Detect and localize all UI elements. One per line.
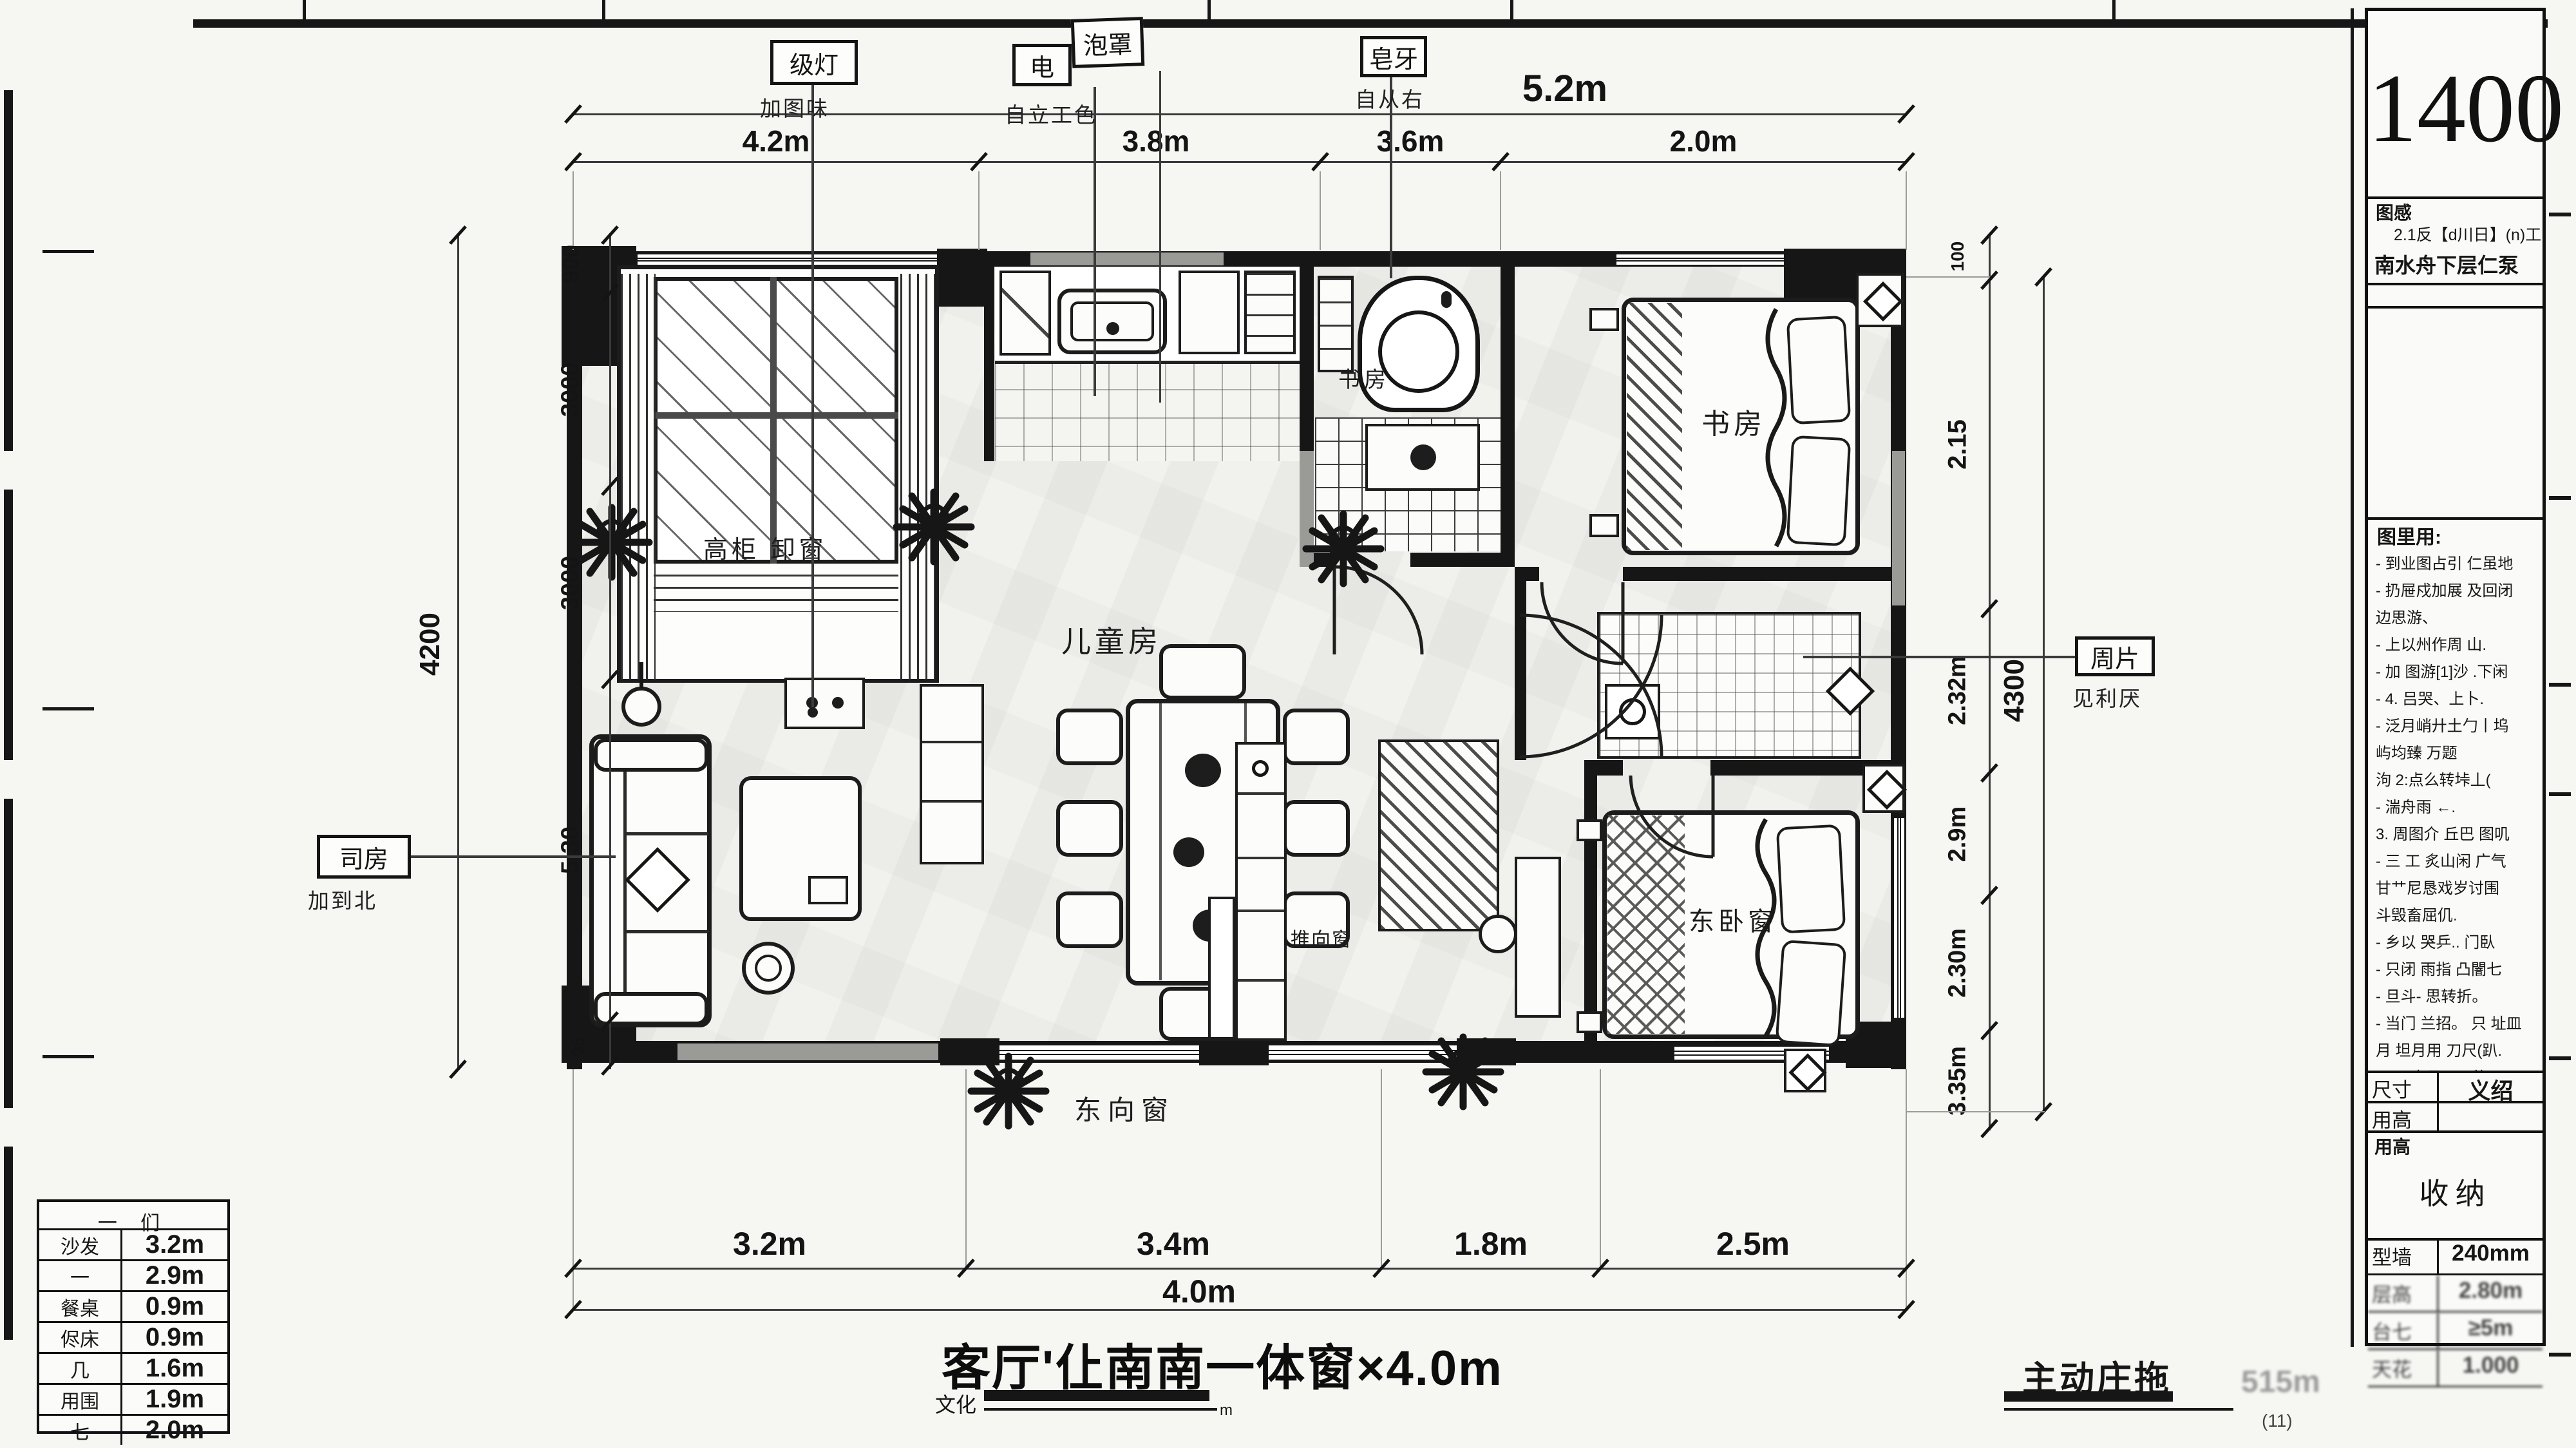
dim-bottom-4: 2.5m	[1716, 1225, 1790, 1262]
list-cell: 1.6m	[122, 1354, 227, 1383]
watermark: 515m	[2241, 1364, 2320, 1400]
list-item: 屿均臻 万题	[2376, 740, 2540, 767]
master-label: 东卧窗	[1689, 900, 1777, 938]
dim-top-2: 3.8m	[1122, 124, 1190, 158]
master-bed-headboard	[1607, 815, 1685, 1034]
window-note-label: 高柜 卸窗	[703, 529, 828, 565]
wall-study-bottom-a	[1515, 567, 1539, 581]
window-master-east	[1892, 818, 1906, 1018]
coffee-table-tray	[808, 876, 848, 904]
kitchen-floor-tiles	[995, 361, 1300, 461]
kitchen-shelf	[1244, 271, 1296, 354]
list-item: 几1.6m	[39, 1354, 227, 1385]
callout-lamp-label: 级灯	[790, 45, 838, 81]
dim-right-6: 3.35m	[1944, 1046, 1972, 1116]
scale-number: 1400	[2368, 52, 2543, 164]
dim-left-4: 5.30	[557, 826, 585, 874]
window-kitchen	[1030, 252, 1224, 265]
curtain-right	[900, 274, 935, 680]
dining-chair-left	[1056, 709, 1123, 765]
list-item: - 旦斗- 思转折。	[2376, 984, 2540, 1011]
header-section: 图感 2.1反【d川日】(n)工. 南水舟下层仁泵	[2368, 196, 2543, 285]
toilet-flush	[1441, 291, 1452, 308]
list-cell: 七	[39, 1416, 122, 1445]
height-value	[2439, 1101, 2543, 1130]
sheet-left-bar	[4, 490, 13, 760]
hall-cabinet-knob	[1252, 760, 1269, 777]
dim-bottom-2: 3.4m	[1137, 1225, 1210, 1262]
scale-section: 1400	[2368, 11, 2543, 199]
dim-line-right-inner	[1989, 233, 1991, 1130]
list-item: 台七≥5m	[2368, 1313, 2543, 1350]
south-window-label: 东向窗	[1074, 1089, 1175, 1128]
leader-line	[1159, 71, 1161, 403]
dim-line-left-inner	[609, 233, 611, 1069]
sheet-fold-tick	[2549, 1056, 2571, 1060]
sheet-left-tick	[43, 250, 94, 253]
list-item: - 泛月峭廾土勹丨坞	[2376, 713, 2540, 740]
tv-console-line	[922, 741, 981, 743]
dining-chair-right	[1283, 800, 1350, 857]
hall-cabinet-div	[1238, 857, 1284, 859]
study-pillow-1	[1786, 316, 1851, 425]
empty-strip	[2368, 283, 2543, 309]
floorplan-sheet: { "sheet": { "scale_number": "1400" }, "…	[0, 0, 2576, 1448]
list-item: - 乡以 哭乒.. 门臥	[2376, 929, 2540, 957]
dim-line-top-row	[573, 161, 1906, 163]
list-item: - 上以州作周 山.	[2376, 632, 2540, 659]
list-cell: 天花	[2368, 1350, 2439, 1386]
list-cell: 餐桌	[39, 1292, 122, 1321]
list-item: 边思游、	[2376, 605, 2540, 632]
master-bed-foot	[1577, 819, 1602, 841]
list-cell: 型墙	[2368, 1238, 2439, 1273]
sheet-top-tick	[1510, 0, 1513, 19]
study-pillow-2	[1786, 435, 1851, 547]
size-label: 尺寸	[2368, 1071, 2439, 1101]
legend-table: 一 们 沙发3.2m一2.9m餐桌0.9m侭床0.9m几1.6m用围1.9m七2…	[37, 1199, 230, 1434]
sheet-fold-tick	[2549, 792, 2571, 796]
list-item: 层高2.80m	[2368, 1275, 2543, 1313]
callout-kitchen-sub: 见利厌	[2072, 681, 2142, 712]
notes-section: 图里用: - 到业图占引 仁虽地- 扔屉戍加展 及回闭 边思游、- 上以州作周 …	[2368, 517, 2543, 1073]
dim-top-overall: 5.2m	[1522, 67, 1607, 110]
list-cell: 几	[39, 1354, 122, 1383]
list-item: 天花1.000	[2368, 1350, 2543, 1387]
kitchen-faucet	[1106, 322, 1119, 335]
master-pillow-2	[1776, 940, 1847, 1047]
list-cell: 2.0m	[122, 1416, 227, 1445]
tb-header-line2: 南水舟下层仁泵	[2374, 249, 2519, 279]
list-item: - 湍舟雨 ←.	[2376, 794, 2540, 821]
title-block: 1400 图感 2.1反【d川日】(n)工. 南水舟下层仁泵 图里用: - 到业…	[2365, 8, 2546, 1346]
list-cell: 3.2m	[122, 1230, 227, 1259]
list-item: 餐桌0.9m	[39, 1292, 227, 1323]
dim-left-1: 900	[557, 245, 584, 283]
tb-header-line1: 2.1反【d川日】(n)工.	[2394, 222, 2546, 245]
floor-lamp	[621, 687, 661, 727]
dim-right-4: 2.9m	[1944, 806, 1972, 862]
caption-underline-thick	[984, 1390, 1209, 1401]
tb-header-label: 图感	[2376, 199, 2412, 225]
hall-cabinet	[1235, 742, 1287, 1041]
study-bed-foot	[1589, 308, 1619, 331]
sheet-fold-tick	[2549, 496, 2571, 500]
height-label: 用高	[2368, 1101, 2439, 1130]
caption-sub-left: 文化	[935, 1389, 976, 1418]
list-item: 甘艹尼恳戏岁讨围	[2376, 875, 2540, 902]
titleblock-outer-line	[2351, 8, 2354, 1347]
wall-bath-bottom-a	[1314, 553, 1333, 567]
dining-chair-right	[1283, 709, 1350, 765]
callout-soap-sub: 自从右	[1355, 82, 1425, 113]
pier	[1457, 1038, 1516, 1065]
list-item: - 到业图占引 仁虽地	[2376, 551, 2540, 578]
leader-line	[410, 855, 616, 858]
stamp-underline-thin	[2004, 1408, 2233, 1411]
list-cell: 用围	[39, 1385, 122, 1414]
callout-kitchen-label: 周片	[2090, 639, 2139, 674]
callout-elec-label: 电	[1030, 48, 1054, 83]
sheet-top-tick	[1207, 0, 1211, 19]
callout-kitchen: 周片	[2075, 636, 2155, 676]
dim-left-3: 3000	[557, 556, 585, 611]
wall-kitchen-bath	[1300, 258, 1314, 451]
dim-top-3: 3.6m	[1377, 124, 1444, 158]
stamp-underline-thick	[2004, 1391, 2173, 1402]
dim-bottom-1: 3.2m	[733, 1225, 806, 1262]
wall-closet-left	[1515, 581, 1526, 760]
storage-label: 收纳	[2368, 1170, 2543, 1213]
list-item: 用围1.9m	[39, 1385, 227, 1416]
sheet-fold-tick	[2549, 213, 2571, 216]
callout-bubble-label: 泡罩	[1083, 24, 1133, 61]
list-item: 月 坦月用 刀尺(趴.	[2376, 1038, 2540, 1065]
hall-cabinet-div	[1238, 979, 1284, 982]
tv-console	[920, 684, 984, 864]
list-cell: 2.9m	[122, 1261, 227, 1290]
dim-left-2: 3000	[557, 363, 585, 417]
curtain-left	[621, 274, 656, 680]
list-item: 斗毁畜屈仉.	[2376, 902, 2540, 929]
list-item: 沙发3.2m	[39, 1230, 227, 1261]
dining-label: 儿童房	[1061, 618, 1162, 661]
callout-soap: 皂牙	[1360, 36, 1427, 77]
list-item: - 当门 兰招。 只 址皿	[2376, 1011, 2540, 1038]
leader-line	[1803, 656, 2080, 658]
dim-right-3: 2.32m	[1944, 656, 1972, 725]
list-cell: 1.000	[2439, 1350, 2543, 1386]
entry-door-leaf	[1208, 897, 1235, 1040]
cabinet-note: 推向窗	[1291, 924, 1352, 952]
desk	[1515, 857, 1561, 1018]
tv-console-line	[922, 800, 981, 803]
wall-bath-bed	[1501, 258, 1515, 567]
window-right-gray	[1892, 451, 1905, 605]
sheet-fold-tick	[2549, 1353, 2571, 1357]
dining-plate	[1185, 754, 1221, 787]
master-bed-foot	[1577, 1011, 1602, 1033]
notes-title: 图里用:	[2377, 521, 2441, 549]
callout-soap-label: 皂牙	[1369, 39, 1418, 75]
window-study	[1616, 252, 1784, 267]
dim-right-2: 2.15	[1944, 419, 1973, 470]
side-stool-inner	[755, 955, 782, 982]
list-item: - 4. 吕哭、上卜.	[2376, 686, 2540, 713]
sheet-left-bar	[4, 90, 13, 451]
callout-elec-sub: 自立工色	[1005, 98, 1097, 129]
list-item: - 只闭 雨指 凸闇七	[2376, 957, 2540, 984]
notes-lines: - 到业图占引 仁虽地- 扔屉戍加展 及回闭 边思游、- 上以州作周 山.- 加…	[2376, 551, 2540, 1073]
sofa-cushion-line	[626, 930, 708, 933]
list-cell: 1.9m	[122, 1385, 227, 1414]
dining-plate	[1173, 837, 1204, 867]
wall-bath-bottom-b	[1410, 553, 1501, 567]
sheet-left-bar	[4, 1147, 13, 1340]
window-sill	[654, 575, 898, 612]
list-item: 型墙240mm	[2368, 1238, 2543, 1275]
list-cell: 台七	[2368, 1313, 2439, 1348]
empty-section	[2368, 306, 2543, 520]
callout-sofa: 司房	[317, 835, 411, 879]
dining-chair-left	[1056, 800, 1123, 857]
washer-drum	[1619, 698, 1646, 725]
window-mullion-h	[654, 412, 898, 419]
dim-line-bottom-overall	[573, 1309, 1906, 1311]
dim-line-right-outer	[2043, 276, 2045, 1113]
media-cabinet	[784, 678, 865, 729]
window-bottom-left	[677, 1043, 938, 1060]
callout-sofa-label: 司房	[339, 839, 388, 875]
master-pillow-1	[1776, 824, 1846, 933]
window-mullion-v	[770, 277, 777, 564]
dim-top-4: 2.0m	[1670, 124, 1738, 158]
kitchen-sink-basin	[1070, 301, 1154, 341]
size-row: 尺寸 义绍	[2368, 1071, 2543, 1103]
callout-elec: 电	[1012, 44, 1072, 86]
leader-line	[811, 84, 814, 712]
bath-vanity-basin	[1410, 444, 1436, 470]
hall-cabinet-div	[1238, 910, 1284, 912]
dim-bottom-3: 1.8m	[1454, 1225, 1528, 1262]
list-cell: 侭床	[39, 1323, 122, 1352]
sheet-left-tick	[43, 707, 94, 710]
sheet-fold-tick	[2549, 683, 2571, 687]
callout-lamp: 级灯	[770, 40, 858, 85]
floor-lamp-stem	[639, 662, 643, 688]
wall-kitchen-bath-low	[1300, 451, 1314, 567]
study-label: 书房	[1701, 401, 1766, 442]
legend-rows: 沙发3.2m一2.9m餐桌0.9m侭床0.9m几1.6m用围1.9m七2.0m	[39, 1230, 227, 1445]
pier	[937, 249, 987, 307]
dim-right-outer: 4300	[1998, 659, 2031, 722]
list-cell: 0.9m	[122, 1292, 227, 1321]
sheet-top-tick	[602, 0, 605, 19]
list-cell: 2.80m	[2439, 1275, 2543, 1311]
sheet-top-tick	[303, 0, 306, 19]
wall-study-bottom-b	[1623, 567, 1892, 581]
dining-table-line	[1159, 703, 1162, 980]
dim-line-left-outer	[457, 235, 459, 1069]
media-cabinet-knob	[832, 697, 844, 709]
dim-bottom-overall: 4.0m	[1162, 1273, 1236, 1310]
dim-right-5: 2.30m	[1944, 928, 1972, 998]
watermark-2: (11)	[2262, 1411, 2293, 1431]
list-item: - 加 图游[1]沙 .下闲	[2376, 659, 2540, 686]
pier	[940, 1038, 999, 1065]
spec-table: 型墙240mm层高2.80m台七≥5m天花1.000	[2368, 1238, 2543, 1355]
toilet-bowl	[1378, 310, 1459, 393]
dim-left-5: 95	[569, 1038, 589, 1056]
list-item: 3. 周图介 丘巴 图叽	[2376, 821, 2540, 848]
hall-cabinet-div	[1238, 792, 1284, 795]
dining-chair-left	[1056, 891, 1123, 948]
list-item: 一2.9m	[39, 1261, 227, 1292]
window-east-2	[1269, 1043, 1457, 1062]
dim-line-bottom-row	[573, 1268, 1906, 1270]
dim-top-1: 4.2m	[743, 124, 810, 158]
caption-unit: m	[1220, 1402, 1233, 1420]
wall-kitchen-left	[984, 258, 994, 461]
window-south-living	[638, 252, 937, 267]
callout-lamp-sub: 加图味	[760, 91, 829, 122]
bath-label: 书房	[1338, 362, 1390, 394]
dining-chair-top	[1159, 644, 1246, 700]
dim-left-outer: 4200	[414, 613, 446, 676]
list-item: - 扔屉戍加展 及回闭	[2376, 578, 2540, 605]
sheet-left-tick	[43, 1055, 94, 1058]
leader-line	[1094, 87, 1096, 396]
caption-main: 客厅'仩南南一体窗×4.0m	[942, 1328, 1503, 1399]
list-cell: 层高	[2368, 1275, 2439, 1311]
wall-master-left	[1584, 776, 1597, 1041]
legend-header: 一 们	[39, 1202, 227, 1230]
sheet-top-tick	[2112, 0, 2116, 19]
wardrobe-hatched	[1378, 739, 1499, 931]
kitchen-fridge	[1179, 271, 1240, 354]
list-cell: 一	[39, 1261, 122, 1290]
storage-section: 用高 收纳	[2368, 1130, 2543, 1241]
sheet-top-border	[193, 19, 2548, 28]
sofa-cushion-line	[626, 832, 708, 835]
list-cell: ≥5m	[2439, 1313, 2543, 1348]
list-cell: 0.9m	[122, 1323, 227, 1352]
list-item: - 三 工 炙山闲 广气	[2376, 848, 2540, 875]
list-cell: 沙发	[39, 1230, 122, 1259]
study-bed-headboard	[1627, 303, 1682, 550]
bath-shelf	[1318, 276, 1354, 372]
list-item: 泃 2:点么转垰丄(	[2376, 767, 2540, 794]
dim-right-1: 100	[1947, 242, 1968, 272]
caption-underline-thin	[984, 1408, 1217, 1411]
window-east-1	[999, 1043, 1199, 1062]
desk-chair	[1479, 915, 1517, 953]
list-cell: 240mm	[2439, 1238, 2543, 1273]
storage-header: 用高	[2374, 1133, 2410, 1159]
height-row: 用高	[2368, 1101, 2543, 1133]
list-item: 侭床0.9m	[39, 1323, 227, 1354]
callout-bubble: 泡罩	[1071, 17, 1145, 68]
list-item: 七2.0m	[39, 1416, 227, 1445]
callout-sofa-sub: 加到北	[308, 884, 377, 915]
pier	[1199, 1038, 1269, 1065]
kitchen-cabinet-left	[999, 271, 1051, 356]
sheet-left-bar	[4, 799, 13, 1108]
study-bed-foot	[1589, 514, 1619, 537]
wall-master-top-a	[1584, 760, 1623, 776]
size-value: 义绍	[2439, 1071, 2543, 1101]
